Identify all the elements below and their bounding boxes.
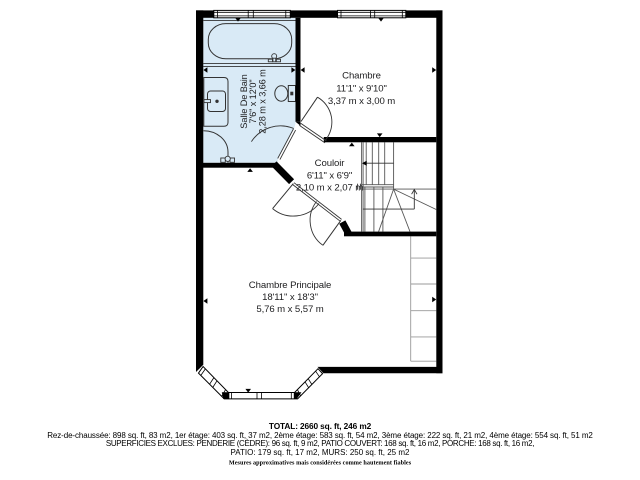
svg-text:6'11" x 6'9": 6'11" x 6'9"	[307, 171, 352, 182]
svg-text:Mesures approximatives mais co: Mesures approximatives mais considérées …	[229, 459, 412, 466]
svg-text:2,10 m x 2,07 m: 2,10 m x 2,07 m	[296, 182, 363, 193]
svg-text:Chambre: Chambre	[342, 71, 381, 82]
svg-text:5,76 m x 5,57 m: 5,76 m x 5,57 m	[256, 304, 323, 315]
svg-text:18'11" x 18'3": 18'11" x 18'3"	[262, 292, 318, 303]
svg-text:TOTAL: 2660 sq. ft, 246 m2: TOTAL: 2660 sq. ft, 246 m2	[269, 421, 372, 431]
svg-text:SUPERFICIES EXCLUES: PENDERIE: SUPERFICIES EXCLUES: PENDERIE (CÈDRE): 9…	[106, 439, 534, 448]
svg-text:3,37 m x 3,00 m: 3,37 m x 3,00 m	[328, 96, 395, 107]
svg-text:PATIO: 179 sq. ft, 17 m2, MURS: PATIO: 179 sq. ft, 17 m2, MURS: 250 sq. …	[231, 448, 410, 457]
svg-text:2,28 m x 3,66 m: 2,28 m x 3,66 m	[257, 69, 267, 134]
svg-text:11'1" x 9'10": 11'1" x 9'10"	[336, 83, 387, 94]
svg-text:Chambre Principale: Chambre Principale	[249, 280, 331, 291]
svg-text:Couloir: Couloir	[315, 158, 346, 169]
